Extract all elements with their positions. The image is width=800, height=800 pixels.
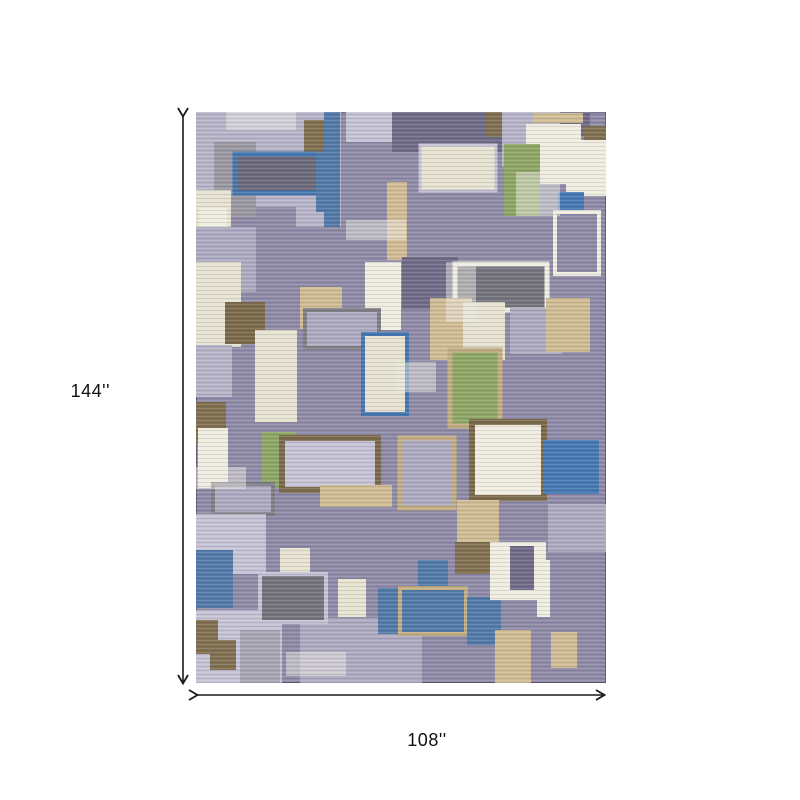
rug-patch [286, 652, 346, 676]
rug-patch [235, 154, 321, 193]
rug-patch [543, 440, 599, 494]
rug-patch [396, 362, 436, 392]
rug-patch [260, 574, 326, 622]
rug-patch [316, 152, 338, 212]
rug-patch [196, 550, 233, 608]
rug-patch [555, 212, 599, 274]
rug-patch [240, 630, 280, 683]
rug-patch [420, 145, 496, 191]
height-dimension-label: 144'' [52, 381, 110, 402]
rug-patch [495, 630, 531, 683]
rug-patch [338, 579, 366, 617]
rug-patch [516, 172, 560, 216]
rug-patch [320, 485, 392, 507]
rug-patch [196, 467, 246, 489]
rug-patch [446, 262, 476, 322]
rug-patch [255, 330, 297, 422]
rug-patch [196, 345, 232, 397]
rug-patch [400, 588, 466, 634]
rug-patch [472, 422, 544, 498]
rug-patch [537, 560, 550, 617]
rug-patch [280, 548, 310, 572]
rug-patch [346, 220, 406, 240]
rug-patch [226, 112, 296, 130]
rug-patch [548, 504, 606, 552]
rug-dimension-scene [0, 0, 800, 800]
product-dimension-diagram: 144'' 108'' [0, 0, 800, 800]
rug-image [196, 112, 606, 683]
rug-patch [546, 298, 590, 352]
rug-patch [455, 542, 495, 574]
rug-patch [533, 113, 583, 123]
width-dimension-label: 108'' [399, 730, 455, 751]
rug-patch [457, 500, 499, 542]
rug-patch [282, 438, 378, 490]
rug-patch [418, 560, 448, 588]
rug-patch [450, 350, 500, 426]
rug-patch [400, 438, 454, 508]
rug-patch [210, 640, 236, 670]
rug-patch [551, 632, 577, 668]
rug-patch [510, 546, 534, 590]
